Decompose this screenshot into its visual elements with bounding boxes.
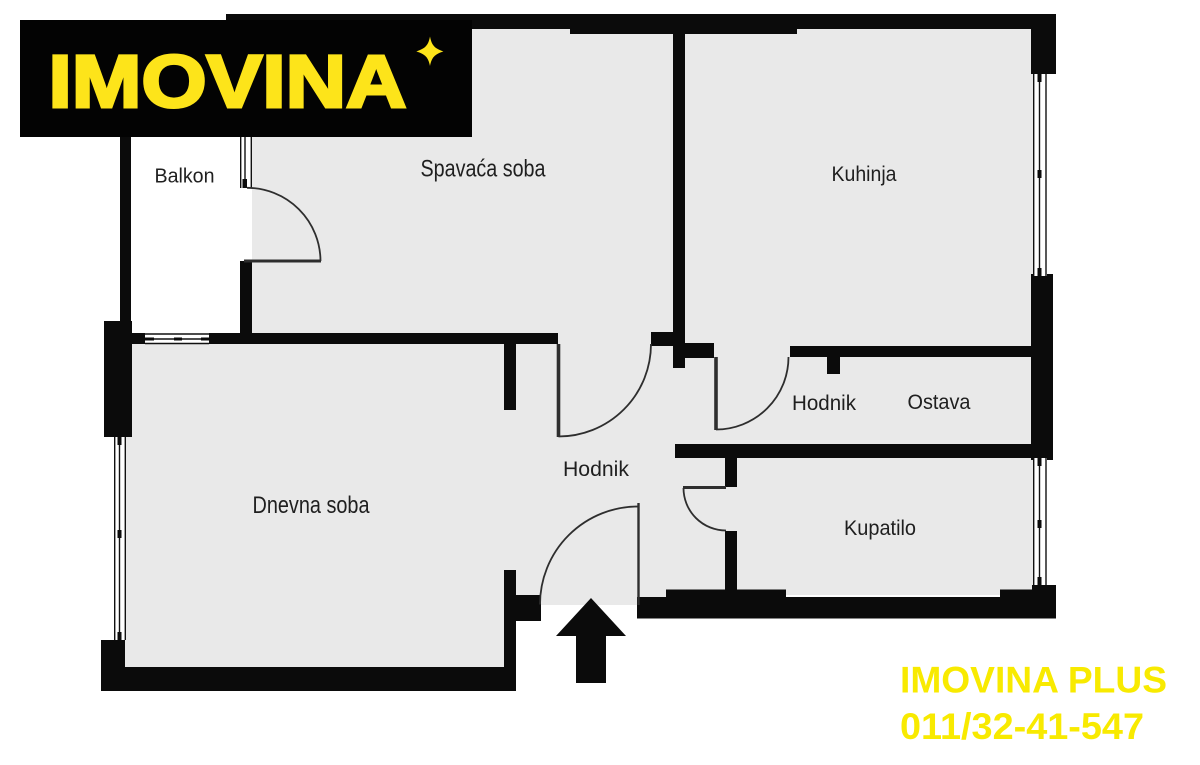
svg-text:Dnevna soba: Dnevna soba	[253, 492, 371, 519]
svg-text:Spavaća soba: Spavaća soba	[421, 156, 547, 183]
svg-text:Hodnik: Hodnik	[792, 392, 856, 415]
svg-text:Hodnik: Hodnik	[563, 458, 629, 481]
svg-text:Kupatilo: Kupatilo	[844, 517, 916, 540]
svg-text:011/32-41-547: 011/32-41-547	[900, 706, 1144, 747]
svg-text:Ostava: Ostava	[908, 391, 971, 414]
svg-text:Kuhinja: Kuhinja	[832, 163, 897, 186]
svg-text:IMOVINA: IMOVINA	[49, 40, 407, 123]
svg-text:IMOVINA PLUS: IMOVINA PLUS	[900, 660, 1167, 701]
svg-text:Balkon: Balkon	[155, 166, 215, 188]
